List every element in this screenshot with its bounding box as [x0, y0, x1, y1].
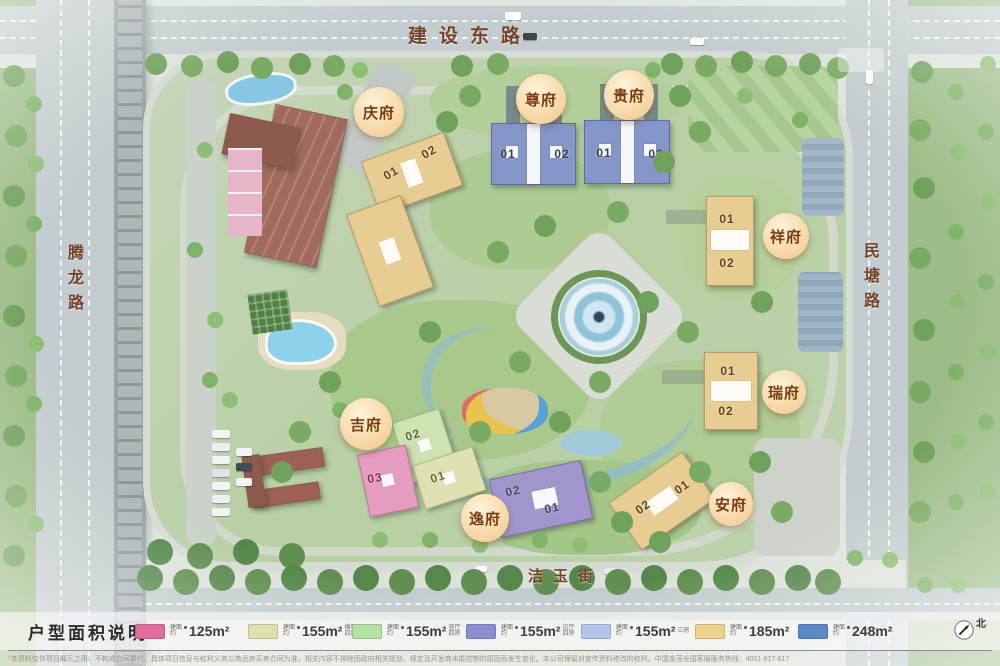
badge-text: 尊府 [525, 89, 557, 110]
road-label-bottom: 洁玉街 [528, 565, 603, 586]
parked-car [212, 508, 230, 516]
legend-suffix: 三房 [677, 628, 691, 634]
badge-text: 祥府 [770, 226, 802, 247]
hedge-maze [247, 289, 292, 334]
bullet-dot [184, 626, 187, 629]
building-badge-ruifu[interactable]: 瑞府 [762, 370, 806, 414]
bullet-dot [630, 626, 633, 629]
lane-line [146, 603, 1000, 605]
legend-swatch [581, 624, 611, 639]
parked-car [212, 482, 230, 490]
bullet-dot [297, 626, 300, 629]
north-indicator: 北 [948, 615, 988, 641]
car [505, 12, 521, 20]
badge-text: 贵府 [613, 85, 645, 106]
sidewalk-bottom [146, 560, 906, 588]
building-badge-jifu[interactable]: 吉府 [340, 398, 392, 450]
legend-prefix: 建面约 [730, 625, 744, 637]
southeast-plaza [754, 438, 840, 556]
legend-item-185: 建面约 185m² [695, 612, 789, 650]
unit-label: 02 [719, 256, 734, 270]
building-badge-xiangfu[interactable]: 祥府 [763, 213, 809, 259]
legend-item-125: 建面约 125m² [135, 612, 229, 650]
legend-swatch [466, 624, 496, 639]
elevated-rail-viaduct [114, 0, 146, 666]
unit-label: 02 [718, 404, 733, 418]
legend-prefix: 建面约 [283, 625, 297, 637]
unit-label: 02 [648, 147, 663, 161]
legend-title: 户型面积说明 [28, 619, 148, 644]
right-green-verge [905, 0, 1000, 666]
car [866, 70, 873, 84]
car [604, 568, 616, 574]
west-service-road [186, 80, 216, 548]
legend-item-248: 建面约 248m² [798, 612, 892, 650]
tower-shadow [662, 370, 704, 384]
road-label-left: 腾龙路 [62, 244, 86, 319]
bullet-dot [847, 626, 850, 629]
badge-text: 瑞府 [768, 382, 800, 403]
badge-text: 庆府 [363, 102, 395, 123]
badge-text: 逸府 [469, 508, 501, 529]
legend-divider [8, 650, 992, 651]
legend-item-155c: 建面约 155m² 边厅四房 [466, 612, 575, 650]
legend-area: 155m² [520, 623, 560, 639]
legend-area: 185m² [749, 623, 789, 639]
legend-item-155a: 建面约 155m² 横厅四房 [248, 612, 357, 650]
legend-area: 155m² [302, 623, 342, 639]
legend-prefix: 建面约 [170, 625, 184, 637]
badge-text: 安府 [715, 494, 747, 515]
unit-label: 02 [554, 147, 569, 161]
building-badge-qingfu[interactable]: 庆府 [354, 87, 404, 137]
sports-courts [228, 148, 262, 236]
legend-swatch [798, 624, 828, 639]
legend-prefix: 建面约 [833, 625, 847, 637]
parked-car [212, 456, 230, 464]
legend-area: 248m² [852, 623, 892, 639]
watermark [838, 48, 884, 72]
legend-swatch [352, 624, 382, 639]
unit-label: 01 [500, 147, 515, 161]
unit-label: 01 [596, 146, 611, 160]
road-label-top: 建设东路 [408, 21, 532, 48]
legend-prefix: 建面约 [501, 625, 515, 637]
legend-swatch [248, 624, 278, 639]
bullet-dot [401, 626, 404, 629]
parked-car [212, 430, 230, 438]
badge-text: 吉府 [350, 414, 382, 435]
car [690, 38, 704, 45]
building-xiangfu[interactable] [706, 196, 754, 286]
legend-area: 155m² [635, 623, 675, 639]
building-badge-yifu[interactable]: 逸府 [461, 494, 509, 542]
bullet-dot [744, 626, 747, 629]
tower-shadow [666, 210, 706, 224]
bullet-dot [515, 626, 518, 629]
legend-area: 155m² [406, 623, 446, 639]
legend-bar: 户型面积说明 建面约 125m² 建面约 155m² 横厅四房 建面约 155m… [0, 612, 1000, 650]
legend-swatch [135, 624, 165, 639]
building-badge-guifu[interactable]: 贵府 [604, 70, 654, 120]
north-compass-icon [953, 619, 975, 641]
road-left [36, 0, 114, 666]
lane-line [60, 0, 62, 666]
parked-car [236, 463, 252, 471]
legend-suffix: 边厅四房 [562, 625, 575, 637]
garage-ramp [802, 138, 844, 216]
legend-item-155b: 建面约 155m² 竖厅四房 [352, 612, 461, 650]
road-label-right: 民塘路 [858, 242, 882, 317]
playground [462, 388, 548, 434]
garage-ramp [798, 272, 843, 352]
unit-label: 01 [719, 212, 734, 226]
building-badge-anfu[interactable]: 安府 [709, 482, 753, 526]
unit-label: 03 [366, 470, 384, 486]
legend-prefix: 建面约 [616, 625, 630, 637]
car [475, 566, 487, 572]
legend-area: 125m² [189, 623, 229, 639]
parked-car [212, 443, 230, 451]
parked-car [212, 495, 230, 503]
legend-prefix: 建面约 [387, 625, 401, 637]
parked-car [212, 469, 230, 477]
parked-car [236, 478, 252, 486]
lane-line [88, 0, 90, 666]
building-badge-zunfu[interactable]: 尊府 [516, 74, 566, 124]
legend-swatch [695, 624, 725, 639]
north-label: 北 [976, 615, 986, 630]
parked-car [236, 448, 252, 456]
disclaimer-text: *本资料仅作项目展示之用，不构成合同要约。具体项目信息与权利义务以商品房买卖合同… [8, 654, 994, 664]
legend-item-155d: 建面约 155m² 三房 [581, 612, 691, 650]
left-green-verge [0, 0, 40, 666]
legend-suffix: 竖厅四房 [448, 625, 461, 637]
pondlet [560, 430, 622, 456]
unit-label: 01 [720, 364, 735, 378]
site-plan-map: 01 02 01 02 01 02 01 02 01 02 01 02 02 0… [0, 0, 1000, 666]
